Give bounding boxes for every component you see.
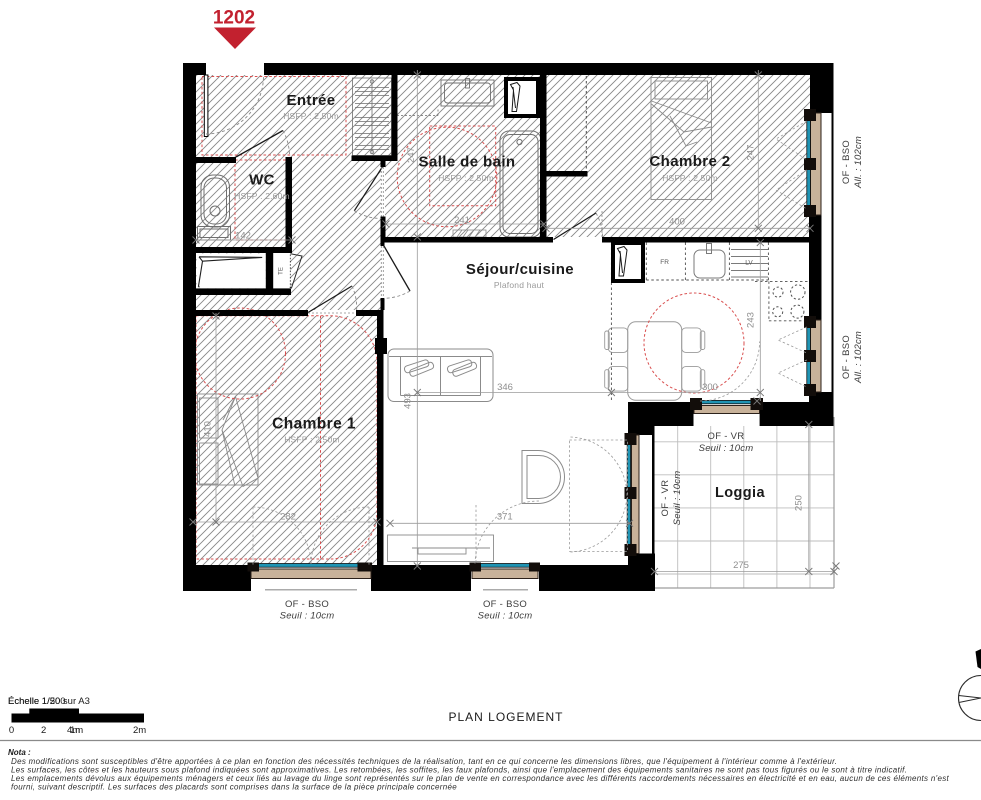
svg-text:Seuil : 10cm: Seuil : 10cm	[478, 611, 533, 622]
svg-text:1202: 1202	[213, 8, 255, 29]
svg-text:142: 142	[235, 231, 251, 242]
svg-text:Seuil : 10cm: Seuil : 10cm	[672, 471, 683, 526]
svg-text:WC: WC	[249, 172, 275, 189]
svg-text:HSFP : 2.50m: HSFP : 2.50m	[438, 173, 494, 183]
svg-text:HSFP : 2.50m: HSFP : 2.50m	[284, 435, 340, 445]
svg-text:0: 0	[9, 725, 14, 736]
svg-text:Seuil : 10cm: Seuil : 10cm	[280, 611, 335, 622]
svg-text:LV: LV	[745, 260, 753, 267]
svg-text:HSFP : 2.50m: HSFP : 2.50m	[283, 111, 339, 121]
svg-text:HSFP : 2.60m: HSFP : 2.60m	[234, 191, 290, 201]
svg-text:1m: 1m	[70, 725, 83, 736]
svg-text:Chambre 1: Chambre 1	[272, 416, 356, 433]
svg-text:OF - BSO: OF - BSO	[841, 335, 852, 379]
svg-text:Entrée: Entrée	[286, 92, 335, 109]
svg-text:Plafond haut: Plafond haut	[494, 280, 545, 290]
svg-text:346: 346	[497, 382, 513, 393]
svg-text:300: 300	[702, 382, 718, 393]
svg-text:All. : 102cm: All. : 102cm	[853, 136, 864, 189]
svg-text:241: 241	[454, 215, 470, 226]
svg-text:fourni, suivant descriptif. Le: fourni, suivant descriptif. Les surfaces…	[11, 783, 457, 792]
svg-text:HSFP : 2.50m: HSFP : 2.50m	[662, 173, 718, 183]
svg-text:Échelle 1/200: Échelle 1/200	[8, 696, 66, 707]
svg-text:FR: FR	[660, 259, 669, 266]
svg-text:Séjour/cuisine: Séjour/cuisine	[466, 261, 574, 278]
svg-text:410: 410	[203, 421, 214, 437]
svg-text:OF - BSO: OF - BSO	[841, 140, 852, 184]
svg-text:PLAN LOGEMENT: PLAN LOGEMENT	[448, 710, 563, 724]
svg-text:Nota :: Nota :	[8, 748, 31, 757]
svg-text:2: 2	[41, 725, 46, 736]
svg-text:OF - VR: OF - VR	[708, 431, 745, 442]
svg-text:247: 247	[746, 145, 757, 161]
svg-text:OF - BSO: OF - BSO	[483, 599, 527, 610]
svg-text:282: 282	[280, 512, 296, 523]
svg-text:OF - VR: OF - VR	[660, 480, 671, 517]
svg-text:All. : 102cm: All. : 102cm	[853, 331, 864, 384]
svg-text:250: 250	[794, 495, 805, 511]
svg-text:OF - BSO: OF - BSO	[285, 599, 329, 610]
svg-text:275: 275	[733, 560, 749, 571]
svg-text:Loggia: Loggia	[715, 485, 765, 501]
svg-text:243: 243	[746, 312, 757, 328]
svg-text:371: 371	[497, 512, 513, 523]
svg-text:400: 400	[669, 217, 685, 228]
svg-text:TE: TE	[279, 267, 285, 275]
svg-text:247: 247	[406, 147, 417, 163]
svg-text:Chambre 2: Chambre 2	[649, 153, 730, 170]
svg-text:493: 493	[403, 393, 414, 409]
svg-text:Salle de bain: Salle de bain	[419, 154, 516, 171]
svg-text:Seuil : 10cm: Seuil : 10cm	[699, 443, 754, 454]
svg-text:2m: 2m	[133, 725, 146, 736]
